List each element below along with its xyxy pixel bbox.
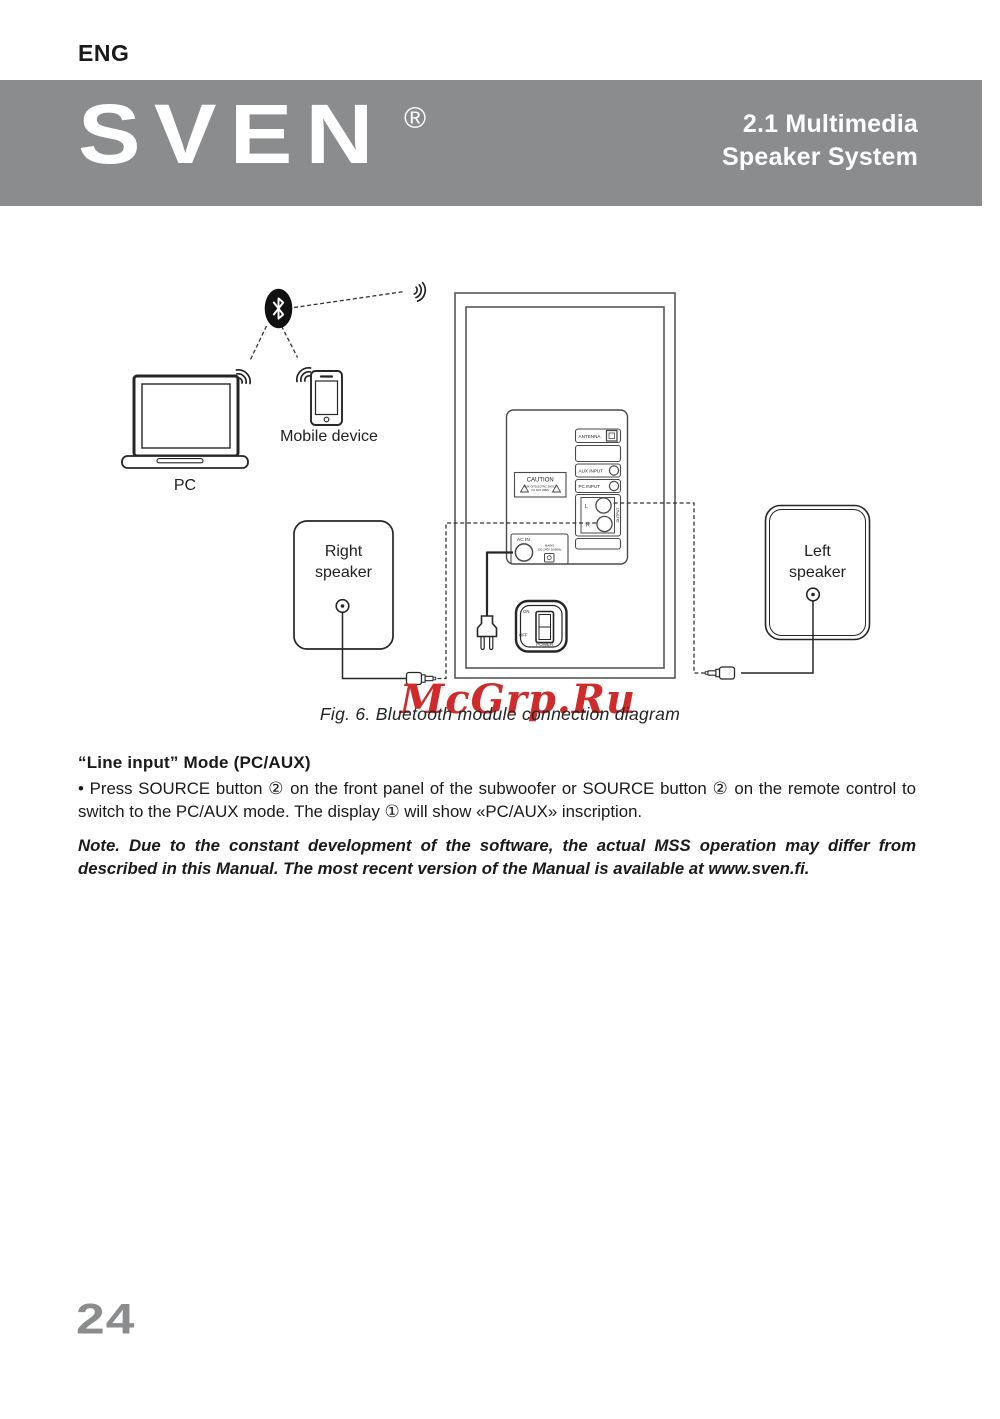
pc-icon — [122, 376, 248, 468]
svg-text:OFF: OFF — [519, 632, 528, 637]
bluetooth-link-line — [251, 326, 267, 360]
blank-plate — [576, 446, 621, 462]
svg-text:AC IN: AC IN — [517, 537, 530, 543]
brand-logo: SVEN — [78, 92, 387, 177]
svg-text:RISK OF ELECTRIC SHOCK: RISK OF ELECTRIC SHOCK — [524, 486, 557, 489]
ac-in-port: AC IN MAINS 220-240V 50/60Hz — [511, 534, 568, 564]
blank-plate — [576, 539, 621, 550]
svg-text:OUTPUT: OUTPUT — [616, 507, 620, 523]
svg-text:ON: ON — [523, 609, 529, 614]
bullet-text: Press SOURCE button ② on the front panel… — [78, 779, 916, 821]
figure-caption: Fig. 6. Bluetooth module connection diag… — [180, 704, 820, 725]
svg-text:Left: Left — [804, 543, 831, 560]
svg-text:L: L — [585, 504, 588, 510]
right-speaker-box: Right speaker — [294, 521, 393, 649]
mobile-device-icon — [311, 371, 342, 425]
svg-text:MAINS: MAINS — [545, 544, 554, 548]
bluetooth-icon — [265, 289, 293, 329]
output-r-port — [597, 516, 612, 531]
svg-text:CAUTION: CAUTION — [527, 478, 554, 484]
bluetooth-link-line — [294, 292, 405, 308]
signal-waves-icon — [413, 281, 428, 302]
body-paragraph: • Press SOURCE button ② on the front pan… — [78, 777, 916, 824]
page-number: 24 — [76, 1294, 136, 1344]
speaker-connector — [807, 588, 820, 601]
svg-text:R: R — [586, 523, 590, 529]
signal-waves-icon — [233, 367, 254, 388]
signal-waves-icon — [294, 365, 315, 386]
svg-text:PC INPUT: PC INPUT — [579, 484, 601, 489]
fuse-icon — [545, 554, 555, 563]
audio-jack-icon — [705, 667, 734, 679]
banner-title-line1: 2.1 Multimedia — [722, 108, 918, 141]
subwoofer-rear-view: ANTENNA AUX INPUT PC INPUT L R OUTPUT — [455, 293, 675, 678]
svg-text:speaker: speaker — [789, 564, 847, 581]
language-label: ENG — [78, 40, 129, 67]
header-banner: SVEN ® 2.1 Multimedia Speaker System — [0, 80, 982, 206]
speaker-cable — [343, 612, 407, 678]
output-l-port — [596, 498, 611, 513]
registered-trademark-icon: ® — [404, 102, 426, 136]
bullet-marker: • — [78, 779, 84, 798]
banner-title-line2: Speaker System — [722, 141, 918, 174]
speaker-cable-dashed — [611, 503, 705, 673]
output-ports: L R OUTPUT — [576, 495, 621, 537]
banner-title: 2.1 Multimedia Speaker System — [722, 108, 918, 174]
power-plug-icon — [478, 553, 514, 650]
svg-text:ANTENNA: ANTENNA — [579, 434, 602, 439]
pc-input-port: PC INPUT — [576, 480, 621, 493]
speaker-connector — [336, 600, 349, 613]
svg-text:DO NOT OPEN: DO NOT OPEN — [531, 489, 549, 492]
warning-triangle-icon — [553, 485, 561, 492]
section-heading: “Line input” Mode (PC/AUX) — [78, 753, 311, 773]
speaker-cable — [741, 601, 813, 673]
bluetooth-link-line — [282, 326, 298, 358]
caution-label: CAUTION RISK OF ELECTRIC SHOCK DO NOT OP… — [515, 473, 567, 498]
warning-triangle-icon — [521, 485, 529, 492]
svg-text:Right: Right — [325, 543, 363, 560]
left-speaker-box: Left speaker — [766, 506, 870, 640]
power-switch: ON OFF POWER — [516, 601, 567, 652]
svg-text:speaker: speaker — [315, 564, 373, 581]
speaker-cable-dashed — [438, 523, 597, 679]
note-paragraph: Note. Due to the constant development of… — [78, 834, 916, 881]
antenna-port: ANTENNA — [576, 429, 621, 443]
svg-text:220-240V 50/60Hz: 220-240V 50/60Hz — [537, 547, 562, 551]
pc-label: PC — [174, 477, 196, 494]
svg-text:AUX INPUT: AUX INPUT — [579, 469, 604, 474]
svg-text:POWER: POWER — [536, 642, 554, 647]
aux-input-port: AUX INPUT — [576, 464, 621, 477]
mobile-device-label: Mobile device — [280, 428, 378, 445]
